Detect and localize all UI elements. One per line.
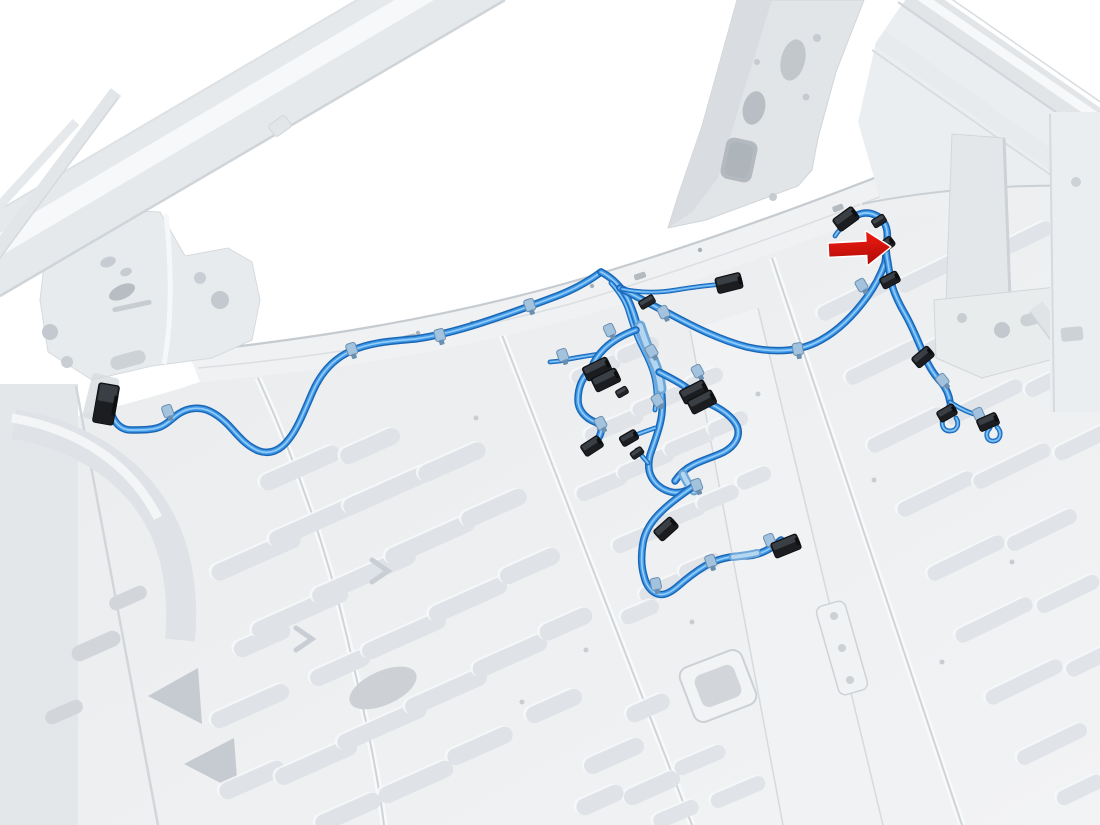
diagram-canvas — [0, 0, 1100, 825]
bracket-hole — [994, 322, 1010, 338]
harness-clip-body — [650, 577, 662, 591]
pillar-dot — [803, 94, 810, 101]
floor-dot — [756, 392, 761, 397]
panel-hole — [42, 324, 58, 340]
bracket-hole — [846, 676, 854, 684]
panel-hole — [211, 291, 229, 309]
floor-dot — [474, 416, 479, 421]
sill-dot — [698, 248, 702, 252]
harness-location-illustration — [0, 0, 1100, 825]
bracket-hole — [957, 313, 967, 323]
pillar-dot — [754, 59, 760, 65]
right-side-panel — [1050, 112, 1100, 412]
floor-dot — [1010, 560, 1015, 565]
c-pillar — [946, 134, 1010, 302]
sill-dot — [590, 284, 594, 288]
floor-dot — [940, 660, 945, 665]
floor-dot — [520, 700, 525, 705]
panel-slot — [1060, 326, 1083, 342]
pillar-dot — [769, 193, 777, 201]
pillar-dot — [813, 34, 821, 42]
bracket-hole — [830, 612, 838, 620]
harness-clip-stem — [654, 588, 660, 594]
panel-hole — [61, 356, 73, 368]
harness-clip-stem — [796, 354, 802, 360]
panel-hole — [1071, 177, 1081, 187]
floor-dot — [584, 648, 589, 653]
panel-hole — [194, 272, 206, 284]
harness-clip-body — [792, 342, 804, 356]
floor-dot — [690, 620, 695, 625]
floor-dot — [872, 478, 877, 483]
bracket-hole — [838, 644, 846, 652]
